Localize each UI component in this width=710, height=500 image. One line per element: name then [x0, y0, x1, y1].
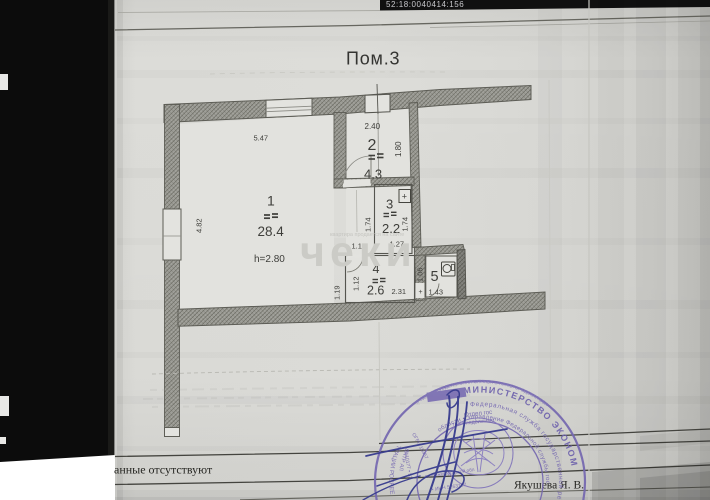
svg-text:52:18:0040414:156: 52:18:0040414:156: [386, 0, 464, 9]
svg-text:+: +: [419, 289, 423, 296]
svg-text:2.6: 2.6: [367, 284, 384, 298]
svg-text:1: 1: [267, 193, 275, 209]
svg-text:Пом.3: Пом.3: [346, 49, 400, 69]
svg-text:2: 2: [368, 137, 377, 154]
svg-text:1.19: 1.19: [333, 285, 342, 300]
svg-text:4.82: 4.82: [195, 218, 204, 233]
svg-text:2.31: 2.31: [392, 287, 407, 296]
svg-text:+: +: [402, 192, 407, 202]
svg-text:28.4: 28.4: [258, 224, 285, 239]
svg-text:1.80: 1.80: [394, 141, 403, 157]
svg-text:чеки: чеки: [300, 228, 417, 276]
svg-text:1.43: 1.43: [429, 288, 444, 297]
svg-text:5: 5: [431, 269, 439, 285]
svg-text:1.06: 1.06: [416, 267, 425, 282]
svg-text:1.12: 1.12: [352, 276, 361, 291]
svg-text:2.40: 2.40: [365, 122, 381, 131]
svg-text:4.3: 4.3: [364, 167, 382, 182]
svg-text:5.47: 5.47: [254, 134, 269, 143]
svg-text:3: 3: [386, 197, 393, 212]
svg-text:анные отсутствуют: анные отсутствуют: [114, 463, 213, 477]
svg-text:h=2.80: h=2.80: [254, 254, 285, 265]
